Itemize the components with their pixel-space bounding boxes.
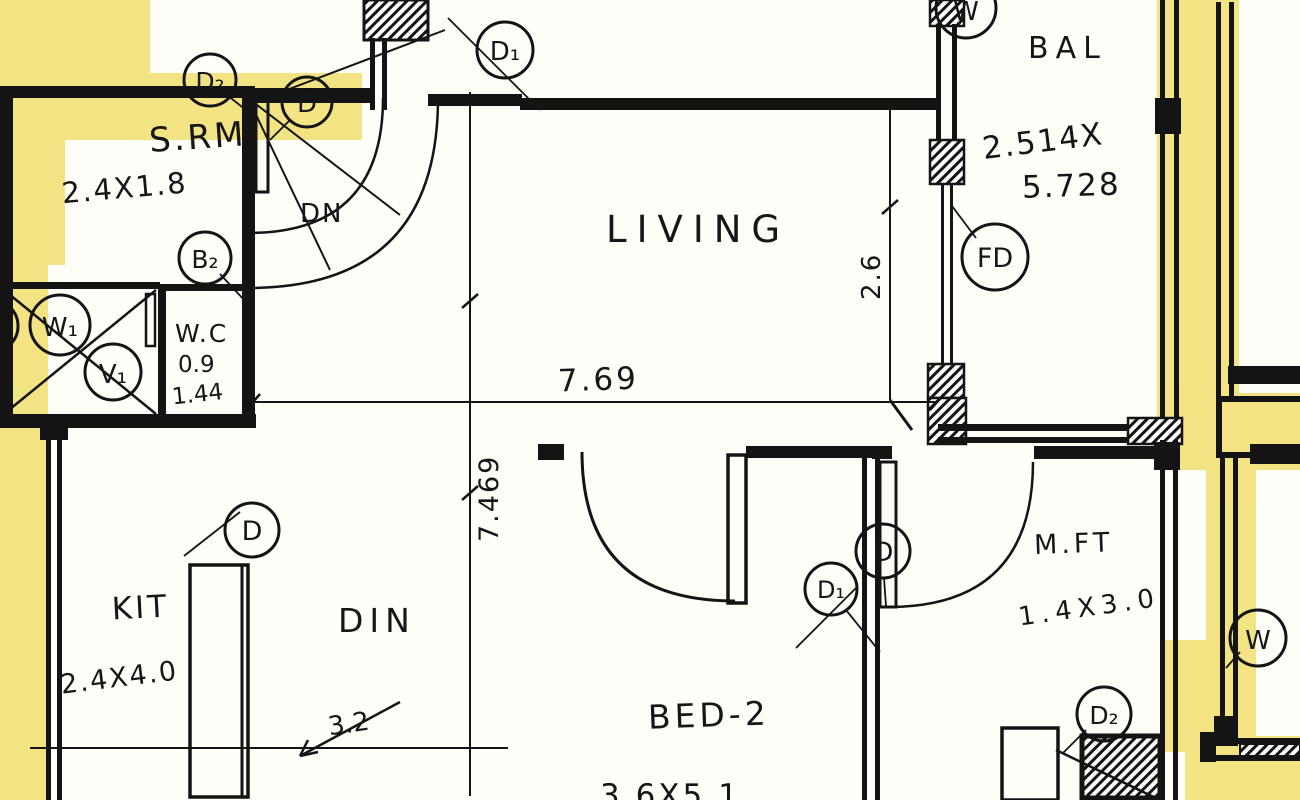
svg-text:D: D	[297, 89, 317, 119]
dim-living-width: 7.69	[557, 361, 639, 400]
svg-text:W: W	[1245, 626, 1271, 656]
room-label-living: LIVING	[606, 208, 790, 251]
floor-plan-sheet: S.RM 2.4X1.8 DN W.C 0.9 1.44 LIVING BAL …	[0, 0, 1300, 800]
room-label-kit: KIT	[111, 588, 170, 627]
svg-text:W: W	[953, 0, 979, 27]
svg-text:V₁: V₁	[99, 360, 127, 390]
room-label-bed2: BED-2	[647, 693, 770, 736]
room-label-wc: W.C	[175, 319, 228, 348]
svg-text:W₁: W₁	[42, 313, 78, 343]
svg-text:D₁: D₁	[817, 576, 845, 604]
svg-text:D₂: D₂	[1089, 701, 1118, 730]
room-label-bal: BAL	[1028, 31, 1107, 66]
stair-dn-label: DN	[300, 199, 343, 229]
svg-text:B₂: B₂	[191, 245, 218, 274]
dim-wc-width: 0.9	[178, 352, 215, 378]
dim-plan-depth: 7.469	[474, 455, 505, 542]
svg-text:FD: FD	[977, 243, 1013, 274]
dim-dining-width: 3.2	[326, 707, 371, 742]
svg-text:D: D	[242, 516, 263, 547]
room-label-srm: S.RM	[148, 114, 248, 161]
dim-bal-2: 5.728	[1021, 166, 1121, 205]
room-label-mft: M.FT	[1033, 527, 1113, 561]
dim-wc-depth: 1.44	[171, 379, 225, 410]
dim-bed2: 3.6X5.1	[600, 778, 741, 800]
svg-text:D₂: D₂	[195, 67, 224, 96]
room-label-din: DIN	[338, 601, 416, 640]
svg-text:D₁: D₁	[490, 37, 520, 67]
dim-balcony-opening: 2.6	[857, 253, 887, 300]
floor-plan-canvas: S.RM 2.4X1.8 DN W.C 0.9 1.44 LIVING BAL …	[0, 0, 1300, 800]
svg-text:D: D	[873, 537, 894, 568]
